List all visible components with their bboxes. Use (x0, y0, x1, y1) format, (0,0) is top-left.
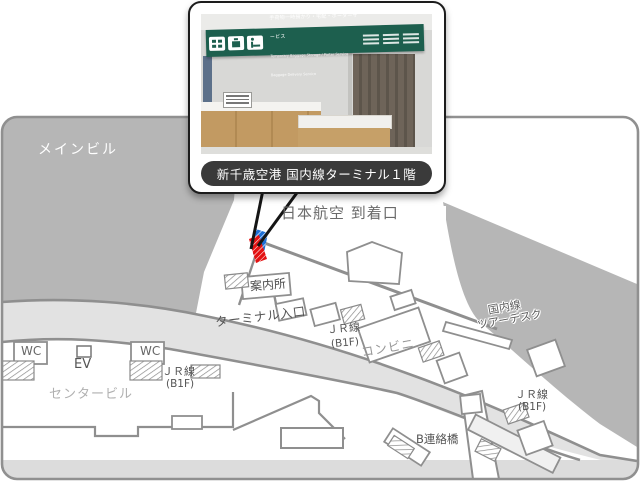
stairs-west-1 (2, 361, 34, 380)
label-wc-right: WC (140, 345, 160, 358)
elevator-box (77, 346, 91, 357)
counter-return-top (298, 115, 392, 129)
label-b-bridge: B連絡橋 (416, 433, 458, 446)
label-center-building: センタービル (49, 388, 133, 402)
sign-line2: Temporary Baggage Storage / Porter Servi… (270, 52, 348, 58)
sign-detail-columns (363, 33, 421, 45)
counter-photo: 手荷物一時預かり・宅配・ポーターサービス Temporary Baggage S… (201, 14, 432, 154)
label-jal-arrival-gate: 日本航空 到着口 (281, 205, 399, 222)
stairs-jr-southwest (191, 365, 220, 378)
stairs-information (224, 273, 248, 289)
photo-callout-card: 手荷物一時預かり・宅配・ポーターサービス Temporary Baggage S… (188, 1, 446, 194)
floor-notch (418, 206, 446, 244)
photo-caption-pill: 新千歳空港 国内線ターミナル１階 (201, 161, 432, 186)
sign-line3: Baggage Delivery Service (271, 71, 316, 76)
small-structure (172, 416, 202, 429)
label-jr-line-center-floor: (B1F) (331, 337, 360, 351)
label-jr-line-right: ＪＲ線 (515, 389, 548, 401)
label-wc-left: WC (21, 345, 41, 358)
counter-notice-card (223, 92, 252, 108)
airport-map-figure: メインビル 日本航空 到着口 案内所 ターミナル入口 ＪＲ線 (B1F) コンビ… (0, 0, 640, 481)
corridor-landing (460, 394, 482, 414)
suitcase-icon (228, 35, 244, 49)
label-elevator: EV (74, 358, 91, 372)
sign-text: 手荷物一時預かり・宅配・ポーターサービス Temporary Baggage S… (269, 14, 364, 80)
porter-icon (247, 35, 263, 49)
baggage-service-sign: 手荷物一時預かり・宅配・ポーターサービス Temporary Baggage S… (206, 24, 425, 57)
label-jr-line-southwest-floor: (B1F) (166, 379, 194, 391)
label-main-building: メインビル (38, 143, 118, 158)
label-jr-line-right-floor: (B1F) (518, 402, 546, 414)
sign-line1: 手荷物一時預かり・宅配・ポーターサービス (269, 14, 357, 40)
stairs-west-2 (130, 361, 162, 380)
coin-locker-icon (209, 36, 225, 50)
photo-floor (201, 147, 432, 154)
center-building-annex (281, 428, 343, 448)
label-jr-line-southwest: ＪＲ線 (162, 366, 195, 378)
